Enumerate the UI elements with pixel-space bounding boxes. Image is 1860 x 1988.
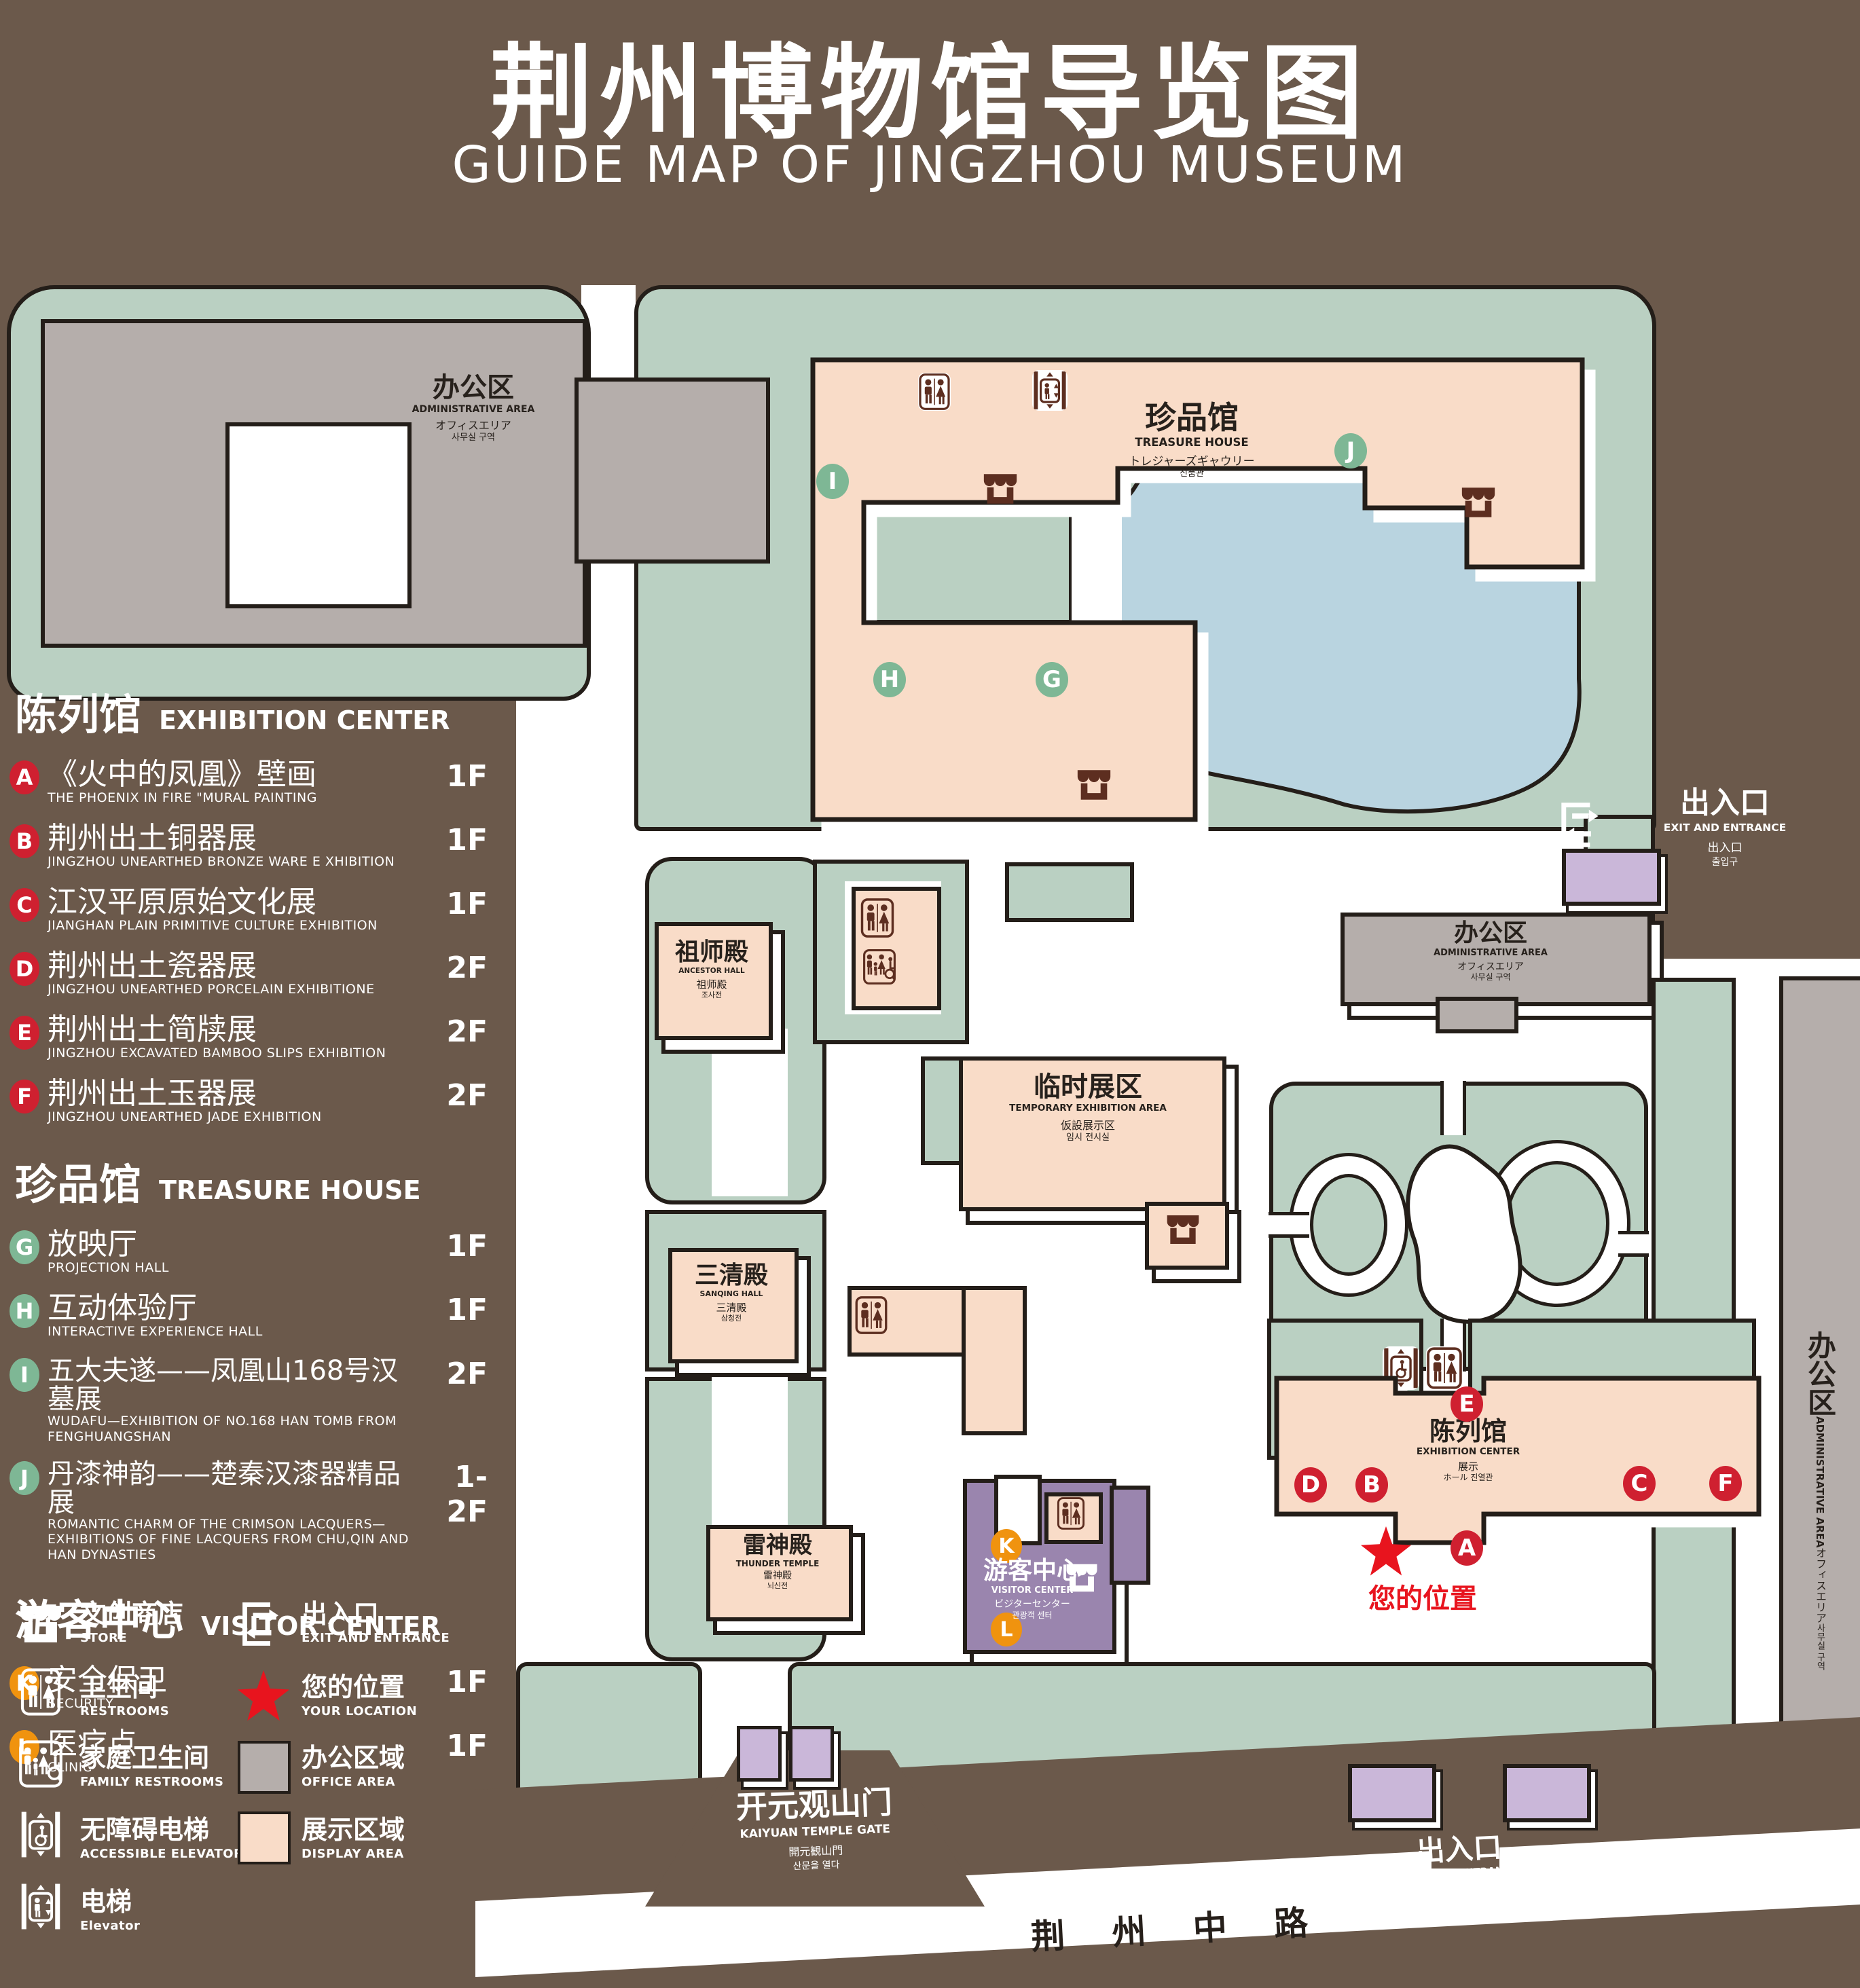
office-area-swatch xyxy=(238,1741,291,1794)
legend-item-e: E 荆州出土简牍展 JINGZHOU EXCAVATED BAMBOO SLIP… xyxy=(10,1014,490,1063)
symbol-display-area: 展示区域 DISPLAY AREA xyxy=(302,1817,405,1861)
gate-pillar xyxy=(737,1726,782,1782)
restroom-annex-arm xyxy=(962,1286,1027,1435)
map-badge-d: D xyxy=(1294,1467,1327,1503)
gate-pillar xyxy=(789,1726,834,1782)
store-icon xyxy=(1164,1210,1202,1249)
ancestor-hall-label: 祖师殿 ANCESTOR HALL 祖师殿 조사전 xyxy=(655,938,769,1000)
your-location-star xyxy=(1360,1526,1412,1577)
elevator-icon xyxy=(16,1882,65,1931)
map-badge-a: A xyxy=(1451,1530,1483,1566)
map-badge-g: G xyxy=(1036,662,1068,697)
exit-south-label: 出入口 EXIT AND ENTRANCE 出入口 출입구 xyxy=(1370,1822,1550,1915)
lawn-filler xyxy=(1005,862,1134,922)
legend-item-b: B 荆州出土铜器展 JINGZHOU UNEARTHED BRONZE WARE… xyxy=(10,823,490,872)
symbol-your-location: 您的位置 YOUR LOCATION xyxy=(302,1674,417,1718)
treasure-house-label: 珍品馆 TREASURE HOUSE トレジャーズギャウリー 진품관 xyxy=(1063,399,1321,479)
family-restroom-icon xyxy=(862,948,896,986)
legend-item-i: I 五大夫遂——凤凰山168号汉墓展 WUDAFU—EXHIBITION OF … xyxy=(10,1357,490,1445)
gate-label: 开元观山门 KAIYUAN TEMPLE GATE 開元観山門 산문을 열다 xyxy=(657,1775,972,1877)
page-subtitle: GUIDE MAP OF JINGZHOU MUSEUM xyxy=(0,136,1860,194)
gatehouse-south xyxy=(1348,1764,1436,1822)
visitor-center-label: 游客中心 VISITOR CENTER ビジターセンター 관광객 센터 xyxy=(964,1556,1100,1620)
sanqing-hall-label: 三清殿 SANQING HALL 三清殿 삼청전 xyxy=(668,1262,795,1323)
legend-item-c: C 江汉平原原始文化展 JIANGHAN PLAIN PRIMITIVE CUL… xyxy=(10,887,490,936)
restroom-icon xyxy=(854,1295,888,1335)
symbol-accessible-elevator: 无障碍电梯 ACCESSIBLE ELEVATOR xyxy=(80,1817,243,1861)
restroom-icon xyxy=(1057,1496,1085,1530)
symbol-restrooms: 卫生间 RESTROOMS xyxy=(80,1674,169,1718)
map-badge-f: F xyxy=(1709,1466,1742,1501)
legend-item-f: F 荆州出土玉器展 JINGZHOU UNEARTHED JADE EXHIBI… xyxy=(10,1078,490,1127)
elevator-icon xyxy=(1032,370,1068,411)
restrooms-icon xyxy=(16,1668,65,1716)
gatehouse-ne xyxy=(1562,849,1661,906)
map-badge-h: H xyxy=(873,662,906,697)
map-badge-j: J xyxy=(1334,433,1367,468)
symbol-elevator: 电梯 Elevator xyxy=(80,1889,140,1933)
exit-icon xyxy=(1556,800,1607,850)
map-badge-c: C xyxy=(1623,1466,1656,1501)
symbols-legend: 文创商店 STORE 卫生间 RESTROOMS 家庭卫生间 FAMILY RE… xyxy=(10,1600,493,1980)
exit-icon xyxy=(238,1600,287,1649)
map-badge-e: E xyxy=(1451,1386,1483,1422)
store-icon xyxy=(1459,483,1498,521)
admin-nw-wing xyxy=(575,378,770,564)
your-location-star xyxy=(236,1670,291,1722)
symbol-exit: 出入口 EXIT AND ENTRANCE xyxy=(302,1601,450,1645)
legend-item-h: H 互动体验厅 INTERACTIVE EXPERIENCE HALL 1F xyxy=(10,1293,490,1342)
exhibition-center-label: 陈列馆 EXHIBITION CENTER 展示 ホール 진열관 xyxy=(1387,1416,1550,1483)
legend-item-j: J 丹漆神韵——楚秦汉漆器精品展 ROMANTIC CHARM OF THE C… xyxy=(10,1460,490,1563)
visitor-center-arm xyxy=(1110,1486,1150,1585)
symbol-office-area: 办公区域 OFFICE AREA xyxy=(302,1745,405,1789)
legend-item-g: G 放映厅 PROJECTION HALL 1F xyxy=(10,1229,490,1278)
temporary-exhibition-label: 临时展区 TEMPORARY EXHIBITION AREA 仮設展示区 임시 … xyxy=(972,1071,1203,1143)
symbol-store: 文创商店 STORE xyxy=(80,1601,183,1645)
legend-item-a: A 《火中的凤凰》壁画 THE PHOENIX IN FIRE "MURAL P… xyxy=(10,759,490,808)
thunder-temple-label: 雷神殿 THUNDER TEMPLE 雷神殿 뇌신전 xyxy=(706,1532,849,1591)
display-area-swatch xyxy=(238,1811,291,1864)
admin-east-label: 办公区 ADMINISTRATIVE AREA オフィスエリア 사무실 구역 xyxy=(1786,1290,1854,1711)
legend-item-d: D 荆州出土瓷器展 JINGZHOU UNEARTHED PORCELAIN E… xyxy=(10,951,490,999)
admin-mid-label: 办公区 ADMINISTRATIVE AREA オフィスエリア 사무실 구역 xyxy=(1379,919,1603,982)
legend-section-treasure-house: 珍品馆 TREASURE HOUSE xyxy=(15,1150,490,1211)
legend-section-exhibition-center: 陈列馆 EXHIBITION CENTER xyxy=(15,680,490,741)
restroom-icon xyxy=(918,373,951,411)
store-icon xyxy=(1074,766,1114,804)
your-location-label: 您的位置 xyxy=(1345,1577,1501,1616)
family-restrooms-icon xyxy=(16,1739,65,1788)
gatehouse-south xyxy=(1503,1764,1591,1822)
admin-nw-label: 办公区 ADMINISTRATIVE AREA オフィスエリア 사무실 구역 xyxy=(375,372,572,443)
path-thunder xyxy=(712,1377,788,1525)
map-badge-b: B xyxy=(1355,1467,1388,1503)
accessible-elevator-icon xyxy=(16,1810,65,1859)
restroom-icon xyxy=(860,898,895,938)
admin-mid-tab xyxy=(1436,997,1518,1033)
store-icon xyxy=(16,1600,65,1649)
map-badge-i: I xyxy=(816,464,849,499)
symbol-family-restrooms: 家庭卫生间 FAMILY RESTROOMS xyxy=(80,1745,223,1789)
path-ancestor xyxy=(712,1029,788,1196)
admin-nw-courtyard xyxy=(225,422,412,608)
store-icon xyxy=(981,470,1020,508)
